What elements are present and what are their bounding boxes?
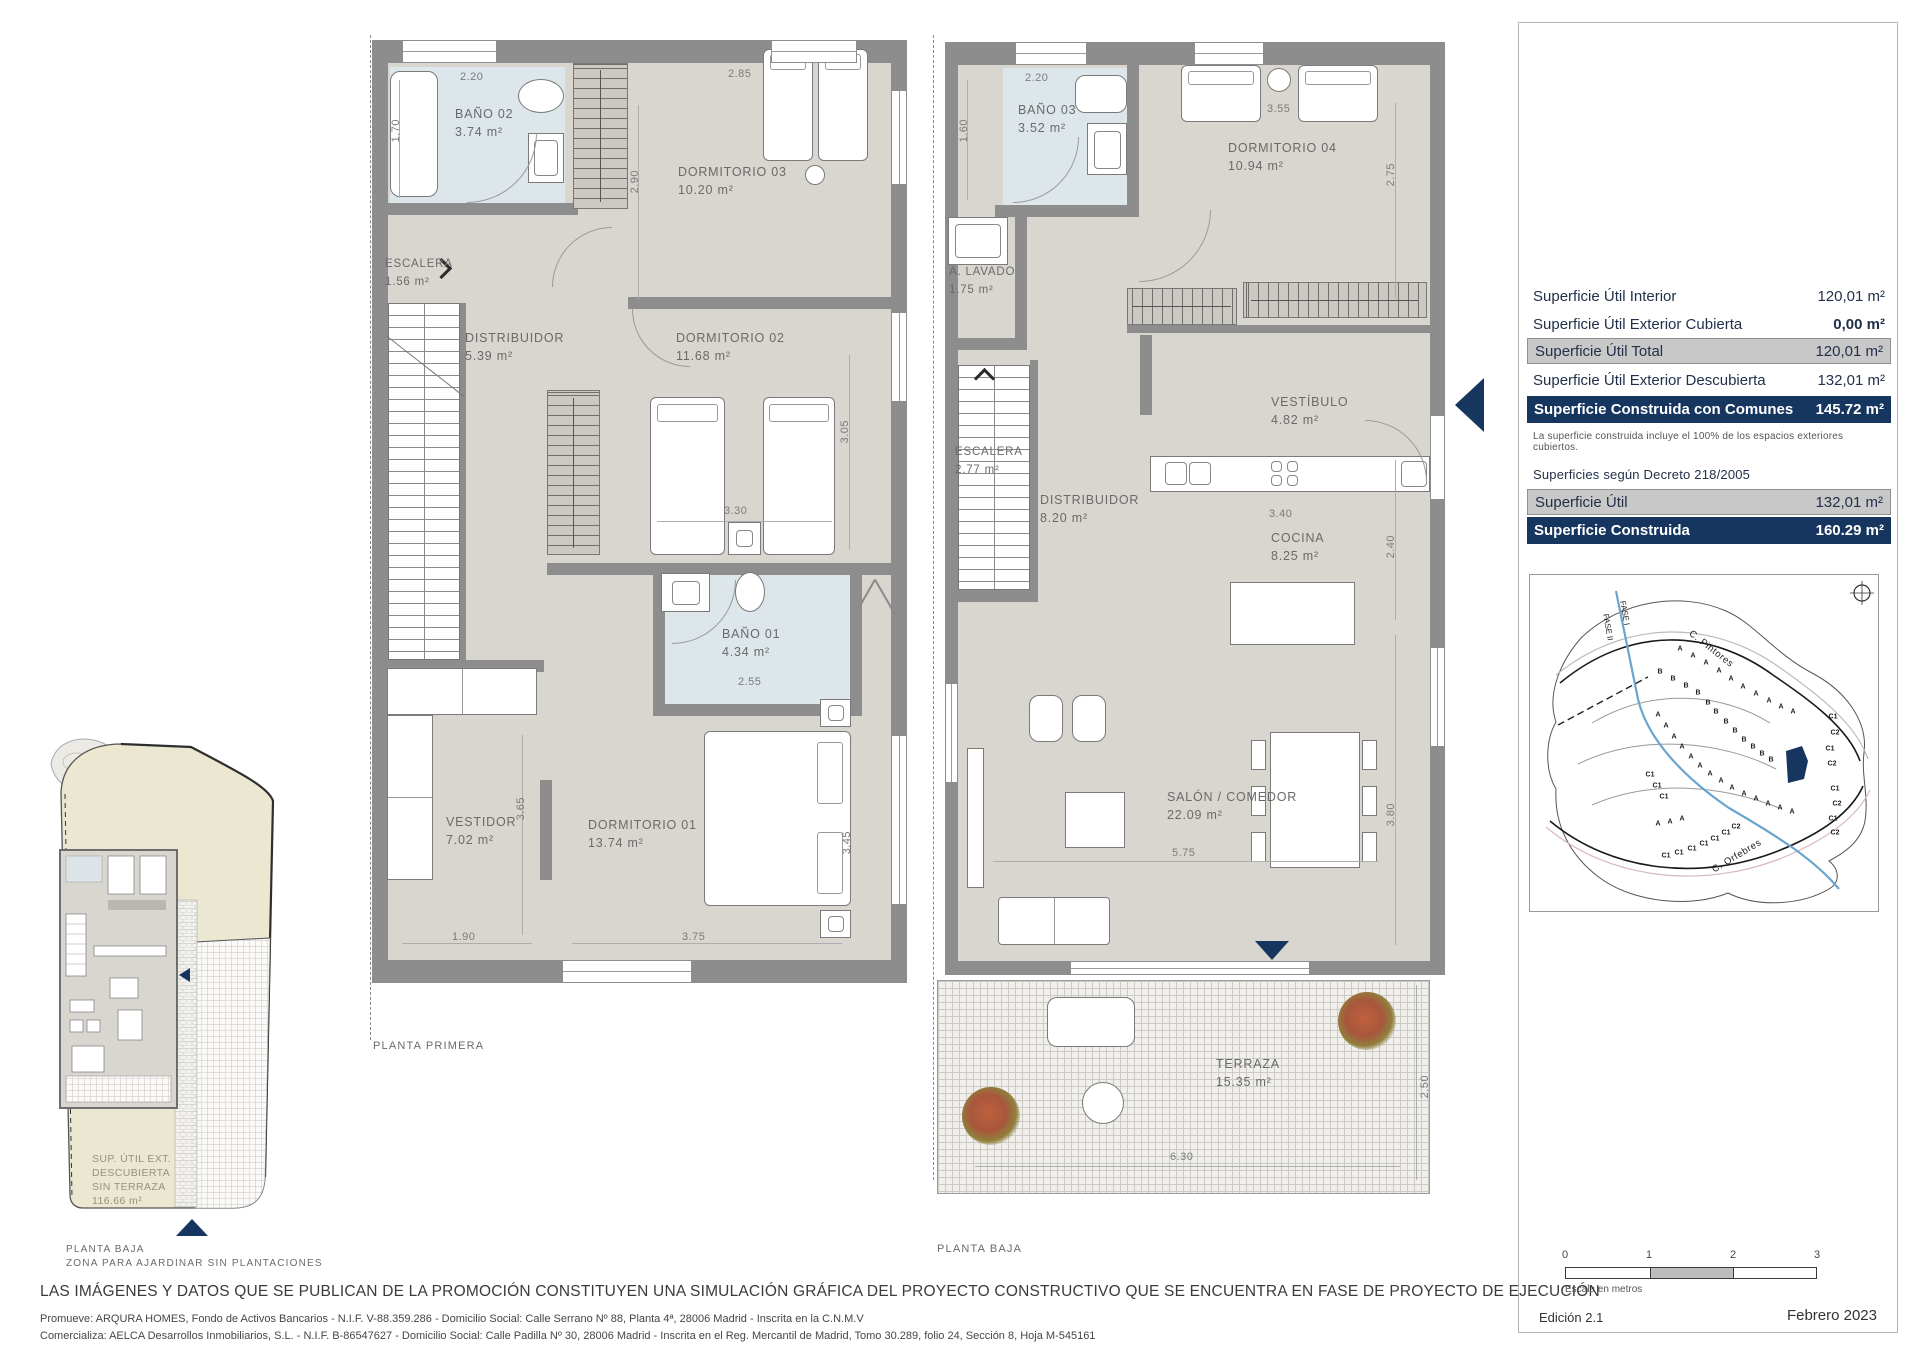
dimension-line (1416, 985, 1417, 1180)
dimension-label: 6.30 (1170, 1151, 1193, 1163)
text-label: DESCUBIERTA (92, 1166, 171, 1180)
dimension-label: 3.05 (839, 420, 851, 443)
map-lot-label: C1 (1662, 853, 1671, 860)
site-plan-label: SUP. ÚTIL EXT. DESCUBIERTA SIN TERRAZA 1… (92, 1152, 171, 1208)
map-lot-label: C1 (1660, 794, 1669, 801)
fixture-detail (955, 224, 1001, 258)
armchair (1029, 695, 1063, 742)
bed (763, 49, 813, 161)
window (1194, 42, 1264, 65)
wall (850, 575, 862, 705)
closet (573, 63, 628, 209)
text-label: BAÑO 01 (722, 625, 780, 643)
sofa (998, 897, 1110, 945)
text-label: ESCALERA (955, 443, 1023, 461)
room-label-dorm03: DORMITORIO 0310.20 m² (678, 163, 787, 199)
dimension-label: 2.85 (728, 68, 751, 80)
text-label: 0,00 m² (1833, 316, 1885, 333)
text-label: SIN TERRAZA (92, 1180, 171, 1194)
map-lot-label: A (1667, 819, 1672, 826)
fixture-detail (1271, 475, 1282, 486)
driveway (195, 938, 270, 1208)
text-label: 8.25 m² (1271, 547, 1324, 565)
bed (1181, 65, 1261, 122)
text-label: ESCALERA (385, 255, 453, 273)
window (1070, 961, 1310, 975)
text-label: 22.09 m² (1167, 806, 1297, 824)
dimension-label: 3.55 (1267, 103, 1290, 115)
text-label: 145.72 m² (1816, 401, 1884, 418)
fixture-detail (534, 140, 558, 176)
text-label: 3.74 m² (455, 123, 513, 141)
text-label: DORMITORIO 03 (678, 163, 787, 181)
closet (547, 390, 600, 555)
map-lot-label: C1 (1646, 772, 1655, 779)
window (891, 90, 907, 185)
toilet (735, 572, 765, 612)
fixture-detail (1287, 475, 1298, 486)
outdoor-sofa (1047, 997, 1135, 1047)
wall (1140, 335, 1152, 415)
text-label: VESTÍBULO (1271, 393, 1348, 411)
text-label: 4.34 m² (722, 643, 780, 661)
map-lot-label: B (1705, 700, 1710, 707)
map-lot-label: B (1750, 744, 1755, 751)
wardrobe-counter (387, 668, 537, 715)
text-label: DORMITORIO 02 (676, 329, 785, 347)
marketer-text: Comercializa: AELCA Desarrollos Inmobili… (40, 1330, 1095, 1342)
room-label-cocina: COCINA8.25 m² (1271, 529, 1324, 565)
map-lot-label: A (1790, 709, 1795, 716)
window (1430, 647, 1445, 747)
window (945, 683, 958, 783)
room-label-distribuidor: DISTRIBUIDOR5.39 m² (465, 329, 564, 365)
room-label-bano03: BAÑO 033.52 m² (1018, 101, 1076, 137)
wall (1030, 360, 1038, 595)
dimension-line (1395, 103, 1396, 298)
map-lot-label: B (1695, 690, 1700, 697)
south-marker-icon (1255, 941, 1289, 960)
washing-machine (948, 217, 1008, 265)
closet (1127, 288, 1237, 325)
text-label: 10.20 m² (678, 181, 787, 199)
surface-row: Superficie Construida con Comunes145.72 … (1527, 396, 1891, 423)
text-label: DISTRIBUIDOR (465, 329, 564, 347)
tree (1338, 992, 1396, 1050)
map-lot-label: A (1765, 801, 1770, 808)
dimension-label: 3.80 (1385, 803, 1397, 826)
dimension-label: 1.60 (958, 119, 970, 142)
dimension-line (975, 1166, 1400, 1167)
bed (704, 731, 851, 906)
text-label: Superficie Útil Total (1535, 343, 1663, 360)
text-label: 15.35 m² (1216, 1073, 1280, 1091)
text-label: 8.20 m² (1040, 509, 1139, 527)
chair (1362, 786, 1377, 816)
room-label-lavado: A. LAVADO1.75 m² (949, 263, 1015, 299)
text-label: SALÓN / COMEDOR (1167, 788, 1297, 806)
text-label: Superficie Construida (1534, 522, 1690, 539)
dimension-line (657, 521, 832, 522)
wall (995, 205, 1139, 217)
dimension-line (638, 105, 639, 300)
dimension-line (572, 943, 842, 944)
fixture-detail (1189, 462, 1211, 485)
text-label: BAÑO 03 (1018, 101, 1076, 119)
text-label: Superficie Útil Interior (1533, 288, 1676, 305)
edition-label: Edición 2.1 (1539, 1310, 1603, 1325)
map-lot-label: A (1655, 712, 1660, 719)
dimension-line (993, 861, 1378, 862)
map-lot-label: A (1740, 684, 1745, 691)
fixture-detail (1287, 461, 1298, 472)
pillow (769, 404, 829, 422)
bed (818, 49, 868, 161)
tree (962, 1087, 1020, 1145)
dimension-label: 3.75 (682, 931, 705, 943)
map-lot-label: A (1655, 821, 1660, 828)
map-lot-label: A (1703, 660, 1708, 667)
window (771, 40, 857, 63)
map-lot-label: A (1741, 791, 1746, 798)
window (891, 312, 907, 402)
map-lot-label: B (1713, 709, 1718, 716)
map-lot-label: B (1768, 757, 1773, 764)
plan-sheet: { "page": { "disclaimer": "LAS IMÁGENES … (0, 0, 1920, 1357)
map-lot-label: A (1707, 771, 1712, 778)
text-label: BAÑO 02 (455, 105, 513, 123)
dimension-label: 2.90 (629, 170, 641, 193)
map-lot-label: A (1753, 796, 1758, 803)
window (562, 960, 692, 983)
outdoor-table (1082, 1082, 1124, 1124)
chair (1362, 740, 1377, 770)
text-label: 120,01 m² (1817, 288, 1885, 305)
map-lot-label: B (1683, 683, 1688, 690)
window (891, 735, 907, 905)
nightstand (1267, 68, 1291, 92)
wall (372, 40, 388, 983)
pillow (1188, 71, 1254, 85)
text-label: 120,01 m² (1815, 343, 1883, 360)
fixture-detail (1165, 462, 1187, 485)
text-label: 116.66 m² (92, 1194, 171, 1208)
fixture-detail (736, 530, 753, 547)
chair (1251, 832, 1266, 862)
map-lot-label: A (1663, 723, 1668, 730)
floor-plan-baja: BAÑO 033.52 m² 2.20 1.60 DORMITORIO 0410… (935, 35, 1450, 1205)
dimension-label: 1.70 (390, 119, 402, 142)
entrance-opening (1430, 415, 1445, 500)
map-lot-label: A (1671, 734, 1676, 741)
map-lot-label: B (1741, 737, 1746, 744)
map-lot-label: C1 (1675, 850, 1684, 857)
dimension-label: 3.40 (1269, 508, 1292, 520)
surface-row: Superficie Útil Exterior Descubierta132,… (1533, 368, 1885, 392)
dimension-line (1395, 635, 1396, 945)
text-label: 13.74 m² (588, 834, 697, 852)
map-lot-label: C1 (1829, 816, 1838, 823)
text-label: 7.02 m² (446, 831, 516, 849)
wall (540, 780, 552, 880)
dimension-label: 5.75 (1172, 847, 1195, 859)
text-label: 160.29 m² (1816, 522, 1884, 539)
window (402, 40, 497, 63)
room-label-escalera: ESCALERA1.56 m² (385, 255, 453, 291)
wall (945, 338, 1027, 350)
map-lot-label: C1 (1700, 841, 1709, 848)
kitchen-island (1230, 582, 1355, 645)
surface-row: Superficie Construida160.29 m² (1527, 517, 1891, 544)
map-lot-label: C1 (1826, 746, 1835, 753)
scale-bar (1565, 1267, 1817, 1279)
map-lot-label: B (1723, 719, 1728, 726)
text-label: TERRAZA (1216, 1055, 1280, 1073)
text-label: Superficie Útil (1535, 494, 1628, 511)
dimension-label: 3.30 (724, 505, 747, 517)
text-label: DORMITORIO 01 (588, 816, 697, 834)
room-label-dorm01: DORMITORIO 0113.74 m² (588, 816, 697, 852)
floor-plan-primera: BAÑO 023.74 m² 2.20 1.70 DORMITORIO 0310… (372, 35, 907, 1060)
room-label-escalera: ESCALERA2.77 m² (955, 443, 1023, 479)
text-label: Superficie Útil Exterior Cubierta (1533, 316, 1742, 333)
coffee-table (1065, 792, 1125, 848)
dimension-line (849, 355, 850, 550)
map-lot-label: A (1716, 668, 1721, 675)
room-label-terraza: TERRAZA15.35 m² (1216, 1055, 1280, 1091)
property-line (370, 35, 371, 1040)
text-label: 132,01 m² (1815, 494, 1883, 511)
armchair (1072, 695, 1106, 742)
bed (650, 397, 725, 555)
site-plan-figure (45, 730, 303, 1245)
map-lot-label: A (1718, 778, 1723, 785)
promoter-text: Promueve: ARQURA HOMES, Fondo de Activos… (40, 1313, 864, 1325)
map-lot-label: A (1688, 754, 1693, 761)
map-lot-label: C1 (1688, 846, 1697, 853)
room-label-distribuidor: DISTRIBUIDOR8.20 m² (1040, 491, 1139, 527)
text-label: 3.52 m² (1018, 119, 1076, 137)
text-label: 4.82 m² (1271, 411, 1348, 429)
surface-row: Superficie Útil132,01 m² (1527, 489, 1891, 515)
text-label: A. LAVADO (949, 263, 1015, 281)
wall (1127, 65, 1139, 205)
surface-row: Superficie Útil Interior120,01 m² (1533, 284, 1885, 308)
north-marker-icon (176, 1219, 208, 1236)
map-lot-label: A (1778, 704, 1783, 711)
room-label-bano01: BAÑO 014.34 m² (722, 625, 780, 661)
map-lot-label: A (1679, 744, 1684, 751)
fixture-detail (1094, 131, 1121, 169)
nightstand (805, 165, 825, 185)
plan-caption-primera: PLANTA PRIMERA (373, 1040, 484, 1052)
text-label: DISTRIBUIDOR (1040, 491, 1139, 509)
wall (388, 203, 578, 215)
map-lot-label: C1 (1831, 786, 1840, 793)
scale-tick: 1 (1641, 1249, 1657, 1261)
info-panel: Superficie Útil Interior120,01 m² Superf… (1518, 22, 1898, 1333)
room-label-vestibulo: VESTÍBULO4.82 m² (1271, 393, 1348, 429)
map-lot-label: C1 (1722, 830, 1731, 837)
text-label: Superficie Útil Exterior Descubierta (1533, 372, 1766, 389)
dimension-label: 1.90 (452, 931, 475, 943)
wardrobe (387, 715, 433, 880)
map-lot-label: A (1697, 763, 1702, 770)
dimension-line (522, 735, 523, 935)
scale-tick: 0 (1557, 1249, 1573, 1261)
decree-heading: Superficies según Decreto 218/2005 (1533, 467, 1750, 482)
map-lot-label: B (1759, 751, 1764, 758)
map-lot-label: C2 (1828, 761, 1837, 768)
map-lot-label: A (1753, 691, 1758, 698)
pillow (1305, 71, 1371, 85)
room-label-vestidor: VESTIDOR7.02 m² (446, 813, 516, 849)
fixture-detail (828, 705, 844, 721)
wall (1015, 217, 1027, 350)
map-lot-label: C2 (1732, 824, 1741, 831)
surface-row: Superficie Útil Exterior Cubierta0,00 m² (1533, 312, 1885, 336)
property-line (933, 35, 934, 1180)
map-lot-label: A (1729, 785, 1734, 792)
map-lot-label: C1 (1711, 836, 1720, 843)
map-lot-label: A (1766, 698, 1771, 705)
wall (1430, 42, 1445, 975)
map-lot-label: B (1657, 669, 1662, 676)
text-label: 11.68 m² (676, 347, 785, 365)
surface-note: La superficie construida incluye el 100%… (1533, 431, 1889, 453)
toilet (518, 79, 564, 113)
dimension-label: 3.65 (515, 797, 527, 820)
map-lot-label: A (1789, 809, 1794, 816)
dimension-label: 2.50 (1419, 1075, 1431, 1098)
nightstand (820, 910, 851, 938)
dimension-label: 2.55 (738, 676, 761, 688)
wall (945, 42, 958, 975)
map-lot-label: C2 (1831, 730, 1840, 737)
text-label: 2.77 m² (955, 461, 1023, 479)
site-plan-caption-1: PLANTA BAJA (66, 1244, 145, 1255)
text-label: 10.94 m² (1228, 157, 1337, 175)
pillow (657, 404, 718, 422)
bench (967, 748, 984, 888)
pillow (817, 742, 843, 804)
wall (1127, 325, 1437, 333)
wall (547, 563, 907, 575)
brick-path (175, 900, 197, 1207)
room-label-dorm02: DORMITORIO 0211.68 m² (676, 329, 785, 365)
text-label: 1.56 m² (385, 273, 453, 291)
text-label: 5.39 m² (465, 347, 564, 365)
window (1015, 42, 1087, 65)
map-lot-label: C2 (1833, 801, 1842, 808)
scale-tick: 2 (1725, 1249, 1741, 1261)
surface-row: Superficie Útil Total120,01 m² (1527, 338, 1891, 364)
mini-house (60, 850, 177, 1108)
room-label-salon: SALÓN / COMEDOR22.09 m² (1167, 788, 1297, 824)
map-lot-label: A (1777, 805, 1782, 812)
room-label-bano02: BAÑO 023.74 m² (455, 105, 513, 141)
text-label: VESTIDOR (446, 813, 516, 831)
text-label: 1.75 m² (949, 281, 1015, 299)
bed (1298, 65, 1378, 122)
map-lot-label: B (1732, 728, 1737, 735)
bed (763, 397, 835, 555)
staircase (388, 303, 460, 660)
map-lot-label: A (1679, 816, 1684, 823)
wall (628, 297, 907, 309)
dimension-label: 3.45 (841, 831, 853, 854)
nightstand (820, 699, 851, 727)
date-label: Febrero 2023 (1787, 1307, 1877, 1324)
dimension-label: 2.20 (1025, 72, 1048, 84)
site-plan-caption-2: ZONA PARA AJARDINAR SIN PLANTACIONES (66, 1258, 323, 1269)
map-lot-label: C1 (1653, 783, 1662, 790)
map-lot-label: A (1728, 676, 1733, 683)
location-map: AAAAAAAAAABBBBBBBBBBBBAAAAAAAAAAAAAAC1C2… (1529, 574, 1879, 912)
map-lot-label: A (1677, 646, 1682, 653)
chair (1251, 740, 1266, 770)
plan-caption-baja: PLANTA BAJA (937, 1243, 1022, 1255)
dimension-label: 2.40 (1385, 535, 1397, 558)
map-lot-label: A (1690, 653, 1695, 660)
dimension-line (402, 943, 532, 944)
text-label: DORMITORIO 04 (1228, 139, 1337, 157)
room-label-dorm04: DORMITORIO 0410.94 m² (1228, 139, 1337, 175)
entrance-arrow-icon (1455, 378, 1484, 432)
text-label: COCINA (1271, 529, 1324, 547)
pillow (817, 832, 843, 894)
fixture-detail (828, 916, 844, 932)
wall (945, 590, 1038, 602)
text-label: Superficie Construida con Comunes (1534, 401, 1793, 418)
dimension-label: 2.20 (460, 71, 483, 83)
scale-tick: 3 (1809, 1249, 1825, 1261)
nightstand (728, 522, 761, 555)
sink (1087, 123, 1127, 175)
chair (1362, 832, 1377, 862)
map-lot-label: C1 (1829, 714, 1838, 721)
text-label: 132,01 m² (1817, 372, 1885, 389)
text-label: SUP. ÚTIL EXT. (92, 1152, 171, 1166)
dimension-label: 2.75 (1385, 163, 1397, 186)
fixture-detail (1271, 461, 1282, 472)
closet (1243, 282, 1427, 318)
disclaimer-text: LAS IMÁGENES Y DATOS QUE SE PUBLICAN DE … (40, 1283, 1600, 1301)
map-lot-label: C2 (1831, 830, 1840, 837)
bathtub (1075, 75, 1127, 113)
map-lot-label: B (1670, 676, 1675, 683)
